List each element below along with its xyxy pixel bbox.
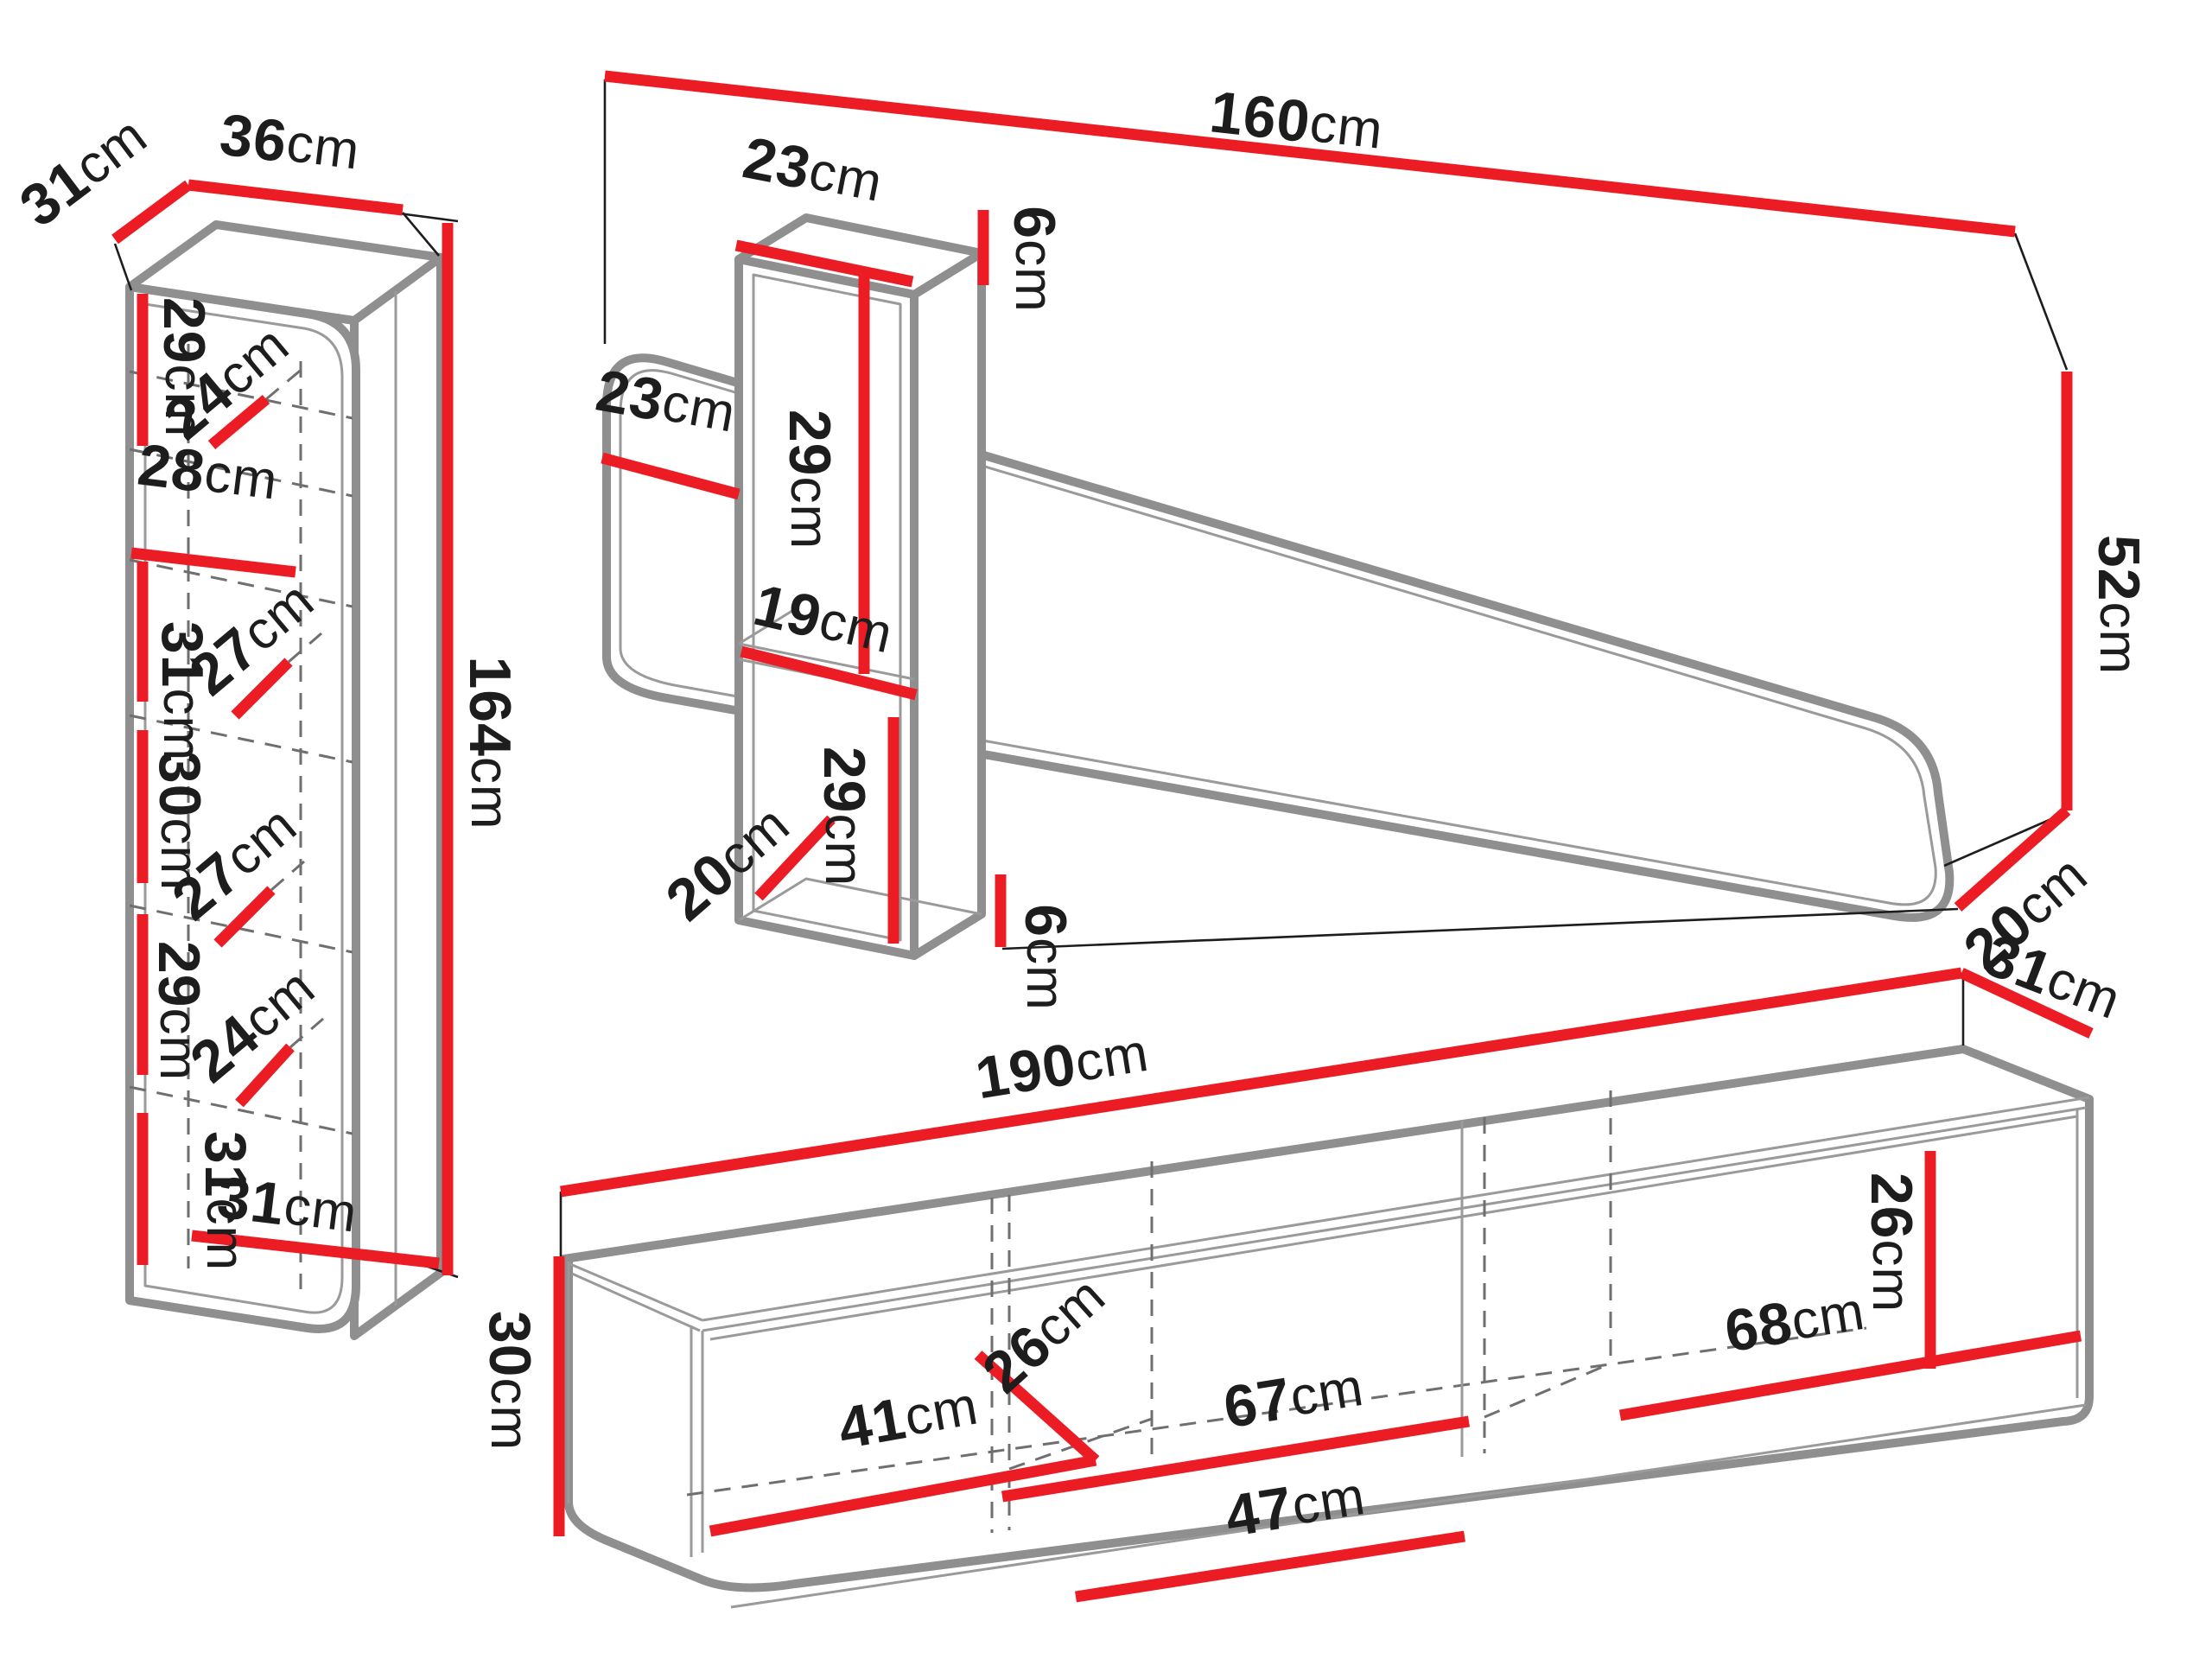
dim-label-comp3-height: 26cm [1859, 1173, 1924, 1313]
cabinet-side-face [354, 257, 441, 1336]
dim-label-unit-lower-h: 29cm [811, 747, 877, 887]
cabinet-ext-topleft [115, 244, 131, 290]
dim-label-unit-width: 23cm [738, 124, 888, 216]
dim-label-gap-top: 6cm [1001, 206, 1067, 312]
tv-stand-drawing: 190cm 31cm 30cm 41cm 26cm 67cm 47cm 68cm… [477, 922, 2130, 1607]
dim-line-comp2-bottom [1076, 1536, 1465, 1597]
dim-label-unit-upper-h: 29cm [777, 410, 842, 550]
shelf-unit-side-face [914, 253, 982, 956]
dim-label-headboard-height: 52cm [2086, 535, 2152, 675]
headboard-ext-bottom [1002, 909, 1958, 949]
tall-cabinet-drawing: 31cm 36cm 164cm 29cm 24cm 28cm 31cm 27cm… [8, 101, 523, 1336]
dim-line-cabinet-depth-top [115, 185, 188, 239]
dim-line-cabinet-width-top [188, 185, 403, 210]
dim-label-cabinet-width-top: 36cm [216, 101, 363, 183]
diagram-canvas: 31cm 36cm 164cm 29cm 24cm 28cm 31cm 27cm… [0, 0, 2212, 1659]
dim-label-tvstand-width: 190cm [971, 1020, 1154, 1112]
headboard-ext-right [2015, 233, 2067, 370]
dim-label-gap-bottom: 6cm [1013, 904, 1078, 1010]
dim-label-cabinet-height: 164cm [457, 656, 523, 829]
headboard-drawing: 160cm 23cm 6cm 23cm 29cm 19cm 29cm 20cm … [591, 76, 2152, 1011]
furniture-dimension-diagram: 31cm 36cm 164cm 29cm 24cm 28cm 31cm 27cm… [0, 0, 2212, 1659]
dim-label-tvstand-height: 30cm [477, 1311, 543, 1451]
